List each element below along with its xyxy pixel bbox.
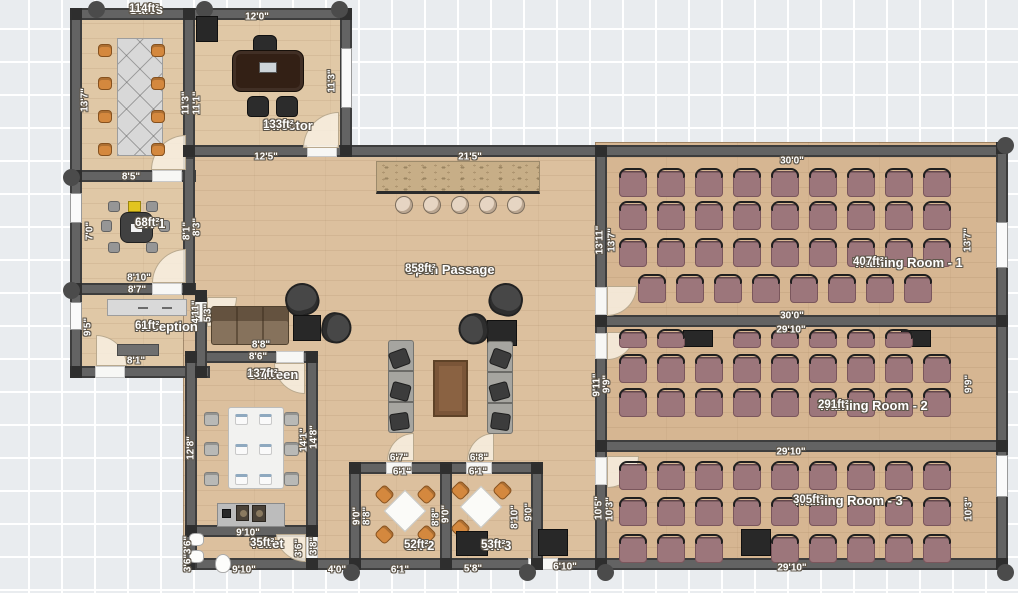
chair-black[interactable] [276,96,298,117]
dimension-label: 8'7" [128,285,146,296]
dimension-label: 30'0" [780,311,804,322]
stool[interactable] [507,196,525,214]
training-chair[interactable] [695,500,723,526]
training-chair[interactable] [657,332,685,348]
chair-gray[interactable] [146,242,158,253]
training-chair[interactable] [809,537,837,563]
counter-tan[interactable] [376,161,540,194]
room-area: 305ft² [793,494,824,507]
dimension-label: 8'10" [127,273,151,284]
dimension-label: 8'1" [127,356,145,367]
wall-post [70,8,82,20]
desk-light[interactable] [107,299,187,316]
chair-gray[interactable] [101,220,112,232]
room-area: 291ft² [818,399,849,412]
room-area: 35ft² [250,537,274,550]
dimension-label: 8'6" [249,352,267,363]
dimension-label: 29'10" [776,447,805,458]
wall-post [306,351,318,363]
chair-orange[interactable] [98,110,112,123]
wall-post [340,145,352,157]
dimension-label: 6'7" [390,453,408,464]
setting[interactable] [235,444,248,455]
training-chair[interactable] [885,171,913,197]
wall-cap [597,564,614,581]
chair-gray2[interactable] [204,412,219,426]
training-chair[interactable] [771,537,799,563]
training-chair[interactable] [885,537,913,563]
training-chair[interactable] [695,204,723,230]
dimension-label: 29'10" [777,563,806,574]
training-chair[interactable] [733,391,761,417]
dimension-label: 9'0" [441,505,452,523]
training-chair[interactable] [619,204,647,230]
training-chair[interactable] [695,357,723,383]
dimension-label: 9'10" [232,565,256,576]
training-chair[interactable] [619,537,647,563]
wall-post [595,315,607,327]
training-chair[interactable] [619,464,647,490]
cabinet-black[interactable] [196,16,218,42]
dimension-label: 6'10" [553,562,577,573]
dimension-label: 21'5" [458,152,482,163]
training-chair[interactable] [695,391,723,417]
dimension-label: 9'9" [964,375,975,393]
sink-dark[interactable] [236,505,249,521]
chair-orange[interactable] [151,44,165,57]
setting[interactable] [259,474,272,485]
training-chair[interactable] [809,204,837,230]
dimension-label: 8'8" [252,340,270,351]
training-chair[interactable] [847,171,875,197]
training-chair[interactable] [771,357,799,383]
training-chair[interactable] [809,332,837,348]
training-chair[interactable] [733,332,761,348]
training-chair[interactable] [695,537,723,563]
room-area: 52ft² [404,539,428,552]
toilet-white[interactable] [215,554,231,573]
stool[interactable] [395,196,413,214]
dimension-label: 12'8" [186,436,197,460]
wall-post [531,462,543,474]
dimension-label: 8'5" [122,172,140,183]
training-chair[interactable] [847,537,875,563]
training-chair[interactable] [809,241,837,267]
wall-post [996,440,1008,452]
training-chair[interactable] [809,171,837,197]
table-brown[interactable] [433,360,468,417]
dimension-label: 8'10" [510,505,521,529]
training-chair[interactable] [847,204,875,230]
window[interactable] [996,222,1008,268]
training-chair[interactable] [923,464,951,490]
training-chair[interactable] [733,241,761,267]
wall-cap [63,169,80,186]
room-area: 137ft² [247,368,278,381]
dimension-label: 13'7" [80,88,91,112]
training-chair[interactable] [657,464,685,490]
chair-gray2[interactable] [204,472,219,486]
training-chair[interactable] [619,357,647,383]
dimension-label: 11'1" [192,91,203,114]
setting[interactable] [259,444,272,455]
wall-post [349,462,361,474]
training-chair[interactable] [657,537,685,563]
wall-post [595,440,607,452]
room-area: 407ft² [853,256,884,269]
wall-cap [997,564,1014,581]
training-chair[interactable] [657,204,685,230]
dimension-label: 10'3" [964,497,975,521]
dimension-label: 11'3" [181,91,192,114]
chair-orange[interactable] [98,143,112,156]
dimension-label: 8'3" [192,218,203,236]
dimension-label: 12'5" [254,152,278,163]
cushion-dark[interactable] [389,412,410,431]
window[interactable] [996,455,1008,497]
dimension-label: 30'0" [780,156,804,167]
chair-orange[interactable] [151,110,165,123]
chair-orange[interactable] [151,77,165,90]
room-area: 68ft² [135,217,159,230]
training-chair[interactable] [676,277,704,303]
training-chair[interactable] [733,171,761,197]
sidetable-black[interactable] [293,315,321,341]
training-chair[interactable] [638,277,666,303]
training-chair[interactable] [885,357,913,383]
room-area: 61ft² [135,320,159,333]
training-chair[interactable] [790,277,818,303]
training-chair[interactable] [619,241,647,267]
dimension-label: 14'8" [309,425,320,449]
training-chair[interactable] [752,277,780,303]
door-opening[interactable] [152,283,182,295]
training-chair[interactable] [695,241,723,267]
wall-post [306,558,318,570]
chair-gray[interactable] [146,201,158,212]
training-chair[interactable] [771,391,799,417]
wall-cap [63,282,80,299]
training-chair[interactable] [809,357,837,383]
wall-cap [88,1,105,18]
training-chair[interactable] [885,204,913,230]
sink-dark[interactable] [252,505,266,522]
setting[interactable] [259,414,272,425]
training-chair[interactable] [771,241,799,267]
screen-black[interactable] [683,330,713,347]
training-chair[interactable] [619,171,647,197]
desk-dark[interactable] [232,50,304,92]
chair-orange[interactable] [98,77,112,90]
wall-cap [519,564,536,581]
setting[interactable] [235,474,248,485]
training-chair[interactable] [714,277,742,303]
training-chair[interactable] [733,500,761,526]
stool[interactable] [451,196,469,214]
training-chair[interactable] [619,500,647,526]
training-chair[interactable] [923,357,951,383]
room-area: 114ft² [129,3,159,16]
wall-post [996,315,1008,327]
door-opening[interactable] [276,351,304,363]
training-chair[interactable] [657,391,685,417]
training-chair[interactable] [847,332,875,348]
stool[interactable] [423,196,441,214]
training-chair[interactable] [847,464,875,490]
window[interactable] [70,302,82,330]
training-chair[interactable] [657,241,685,267]
training-chair[interactable] [809,464,837,490]
accent-yellow[interactable] [128,201,141,212]
training-chair[interactable] [923,204,951,230]
door-opening[interactable] [152,170,182,182]
dimension-label: 29'10" [776,325,805,336]
wall-cap [997,137,1014,154]
chair-gray[interactable] [108,242,120,253]
window[interactable] [341,48,352,108]
training-chair[interactable] [923,500,951,526]
training-chair[interactable] [771,204,799,230]
wall-post [183,283,195,295]
training-chair[interactable] [885,332,913,348]
dimension-label: 6'1" [391,565,409,576]
dimension-label: 6'8" [470,453,488,464]
training-chair[interactable] [657,500,685,526]
wall-post [440,462,452,474]
training-chair[interactable] [733,464,761,490]
training-chair[interactable] [866,277,894,303]
training-chair[interactable] [847,357,875,383]
training-chair[interactable] [771,171,799,197]
dimension-label: 13'11" [595,226,606,255]
dimension-label: 3'6" [183,536,194,554]
cushion-dark[interactable] [490,412,511,431]
dimension-label: 3'6" [294,539,305,557]
chair-gray2[interactable] [284,412,299,426]
window[interactable] [70,193,82,223]
setting[interactable] [235,414,248,425]
room-area: 53ft² [481,539,505,552]
door-opening[interactable] [595,457,607,485]
wall-post [306,525,318,537]
dimension-label: 9'0" [524,503,535,521]
wall-post [185,351,197,363]
training-chair[interactable] [923,171,951,197]
wall-post [183,145,195,157]
dimension-label: 3'6" [183,554,194,572]
door-opening[interactable] [95,366,125,378]
training-chair[interactable] [733,204,761,230]
chair-gray2[interactable] [284,442,299,456]
chair-gray[interactable] [108,201,120,212]
wall-post [595,145,607,157]
dimension-label: 6'1" [469,467,487,478]
wall-cap [331,1,348,18]
room-area: 133ft² [263,119,294,132]
dimension-label: 6'1" [393,467,411,478]
dimension-label: 9'5" [83,318,94,336]
sofa-brown[interactable] [211,306,289,345]
chair-black[interactable] [247,96,269,117]
dimension-label: 8'8" [362,507,373,525]
training-chair[interactable] [695,464,723,490]
training-chair[interactable] [657,171,685,197]
dimension-label: 13'7" [607,228,618,252]
dimension-label: 9'9" [602,375,613,393]
dimension-label: 3'8" [309,537,320,555]
chair-orange[interactable] [98,44,112,57]
dimension-label: 10'5" [594,496,605,520]
wall-post [440,558,452,570]
chair-orange[interactable] [151,143,165,156]
dimension-label: 11'3" [327,69,338,92]
dimension-label: 5'3" [203,304,214,322]
training-chair[interactable] [695,171,723,197]
wall-post [70,366,82,378]
floor-plan-canvas[interactable]: 12'0"12'5"8'5"8'10"8'7"8'1"8'8"8'6"9'10"… [0,0,1018,593]
training-chair[interactable] [619,332,647,348]
wall-post [183,8,195,20]
dimension-label: 4'0" [328,565,346,576]
training-chair[interactable] [657,357,685,383]
dimension-label: 12'0" [245,12,269,23]
training-chair[interactable] [771,464,799,490]
training-chair[interactable] [923,537,951,563]
door-opening[interactable] [595,333,607,359]
stool[interactable] [479,196,497,214]
training-chair[interactable] [885,464,913,490]
screen-black[interactable] [538,529,568,556]
training-chair[interactable] [619,391,647,417]
dimension-label: 5'8" [464,564,482,575]
training-chair[interactable] [733,357,761,383]
training-chair[interactable] [904,277,932,303]
dimension-label: 10'3" [605,497,616,521]
dimension-label: 13'7" [963,228,974,252]
training-chair[interactable] [828,277,856,303]
door-opening[interactable] [595,287,607,315]
cabinet-black[interactable] [222,509,231,518]
dimension-label: 7'0" [85,222,96,240]
cabinet-gray[interactable] [117,344,159,356]
screen-black[interactable] [741,529,771,556]
chair-gray2[interactable] [284,472,299,486]
room-area: 858ft² [405,263,436,276]
wall-segment[interactable] [996,142,1008,570]
wall-post [195,366,207,378]
chair-gray2[interactable] [204,442,219,456]
